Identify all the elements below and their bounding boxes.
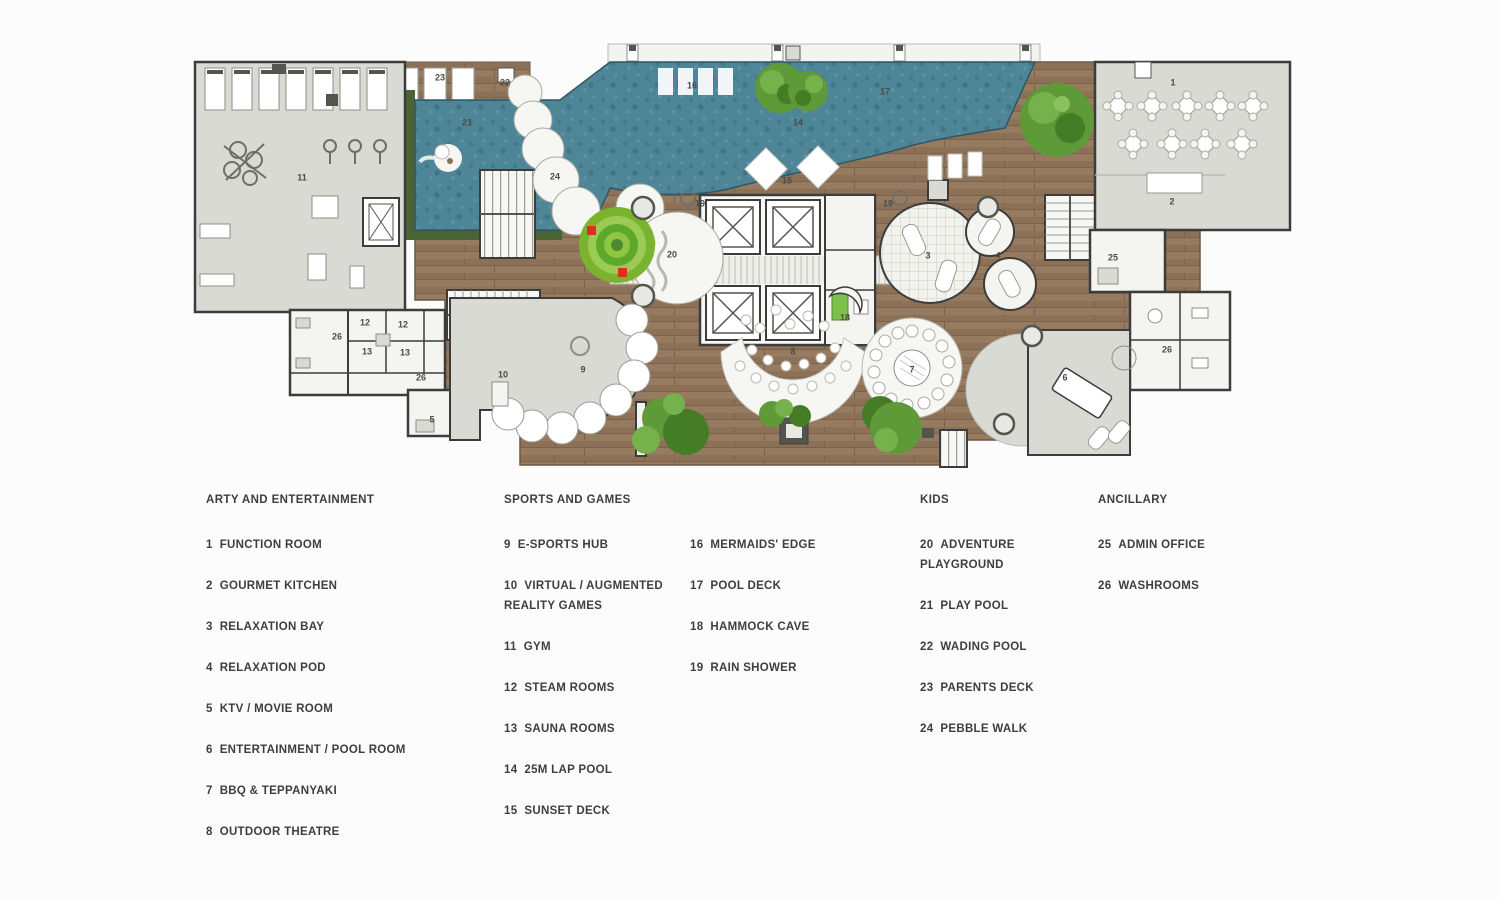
legend-heading: ANCILLARY bbox=[1098, 491, 1308, 510]
legend-item-number: 19 bbox=[690, 662, 703, 674]
legend-item-4: 4RELAXATION POD bbox=[206, 658, 506, 678]
legend-item-number: 25 bbox=[1098, 539, 1111, 551]
plan-marker-16: 16 bbox=[687, 82, 697, 91]
floor-plan-drawing bbox=[180, 28, 1295, 473]
legend-item-16: 16MERMAIDS' EDGE bbox=[690, 535, 905, 555]
legend-item-26: 26WASHROOMS bbox=[1098, 576, 1308, 596]
legend-item-number: 21 bbox=[920, 600, 933, 612]
legend-item-24: 24PEBBLE WALK bbox=[920, 719, 1052, 739]
legend-item-number: 23 bbox=[920, 682, 933, 694]
legend-item-label: ADMIN OFFICE bbox=[1118, 539, 1205, 551]
legend-item-label: SUNSET DECK bbox=[524, 805, 610, 817]
legend-item-number: 4 bbox=[206, 662, 213, 674]
plan-marker-14: 14 bbox=[793, 119, 803, 128]
legend-item-label: MERMAIDS' EDGE bbox=[710, 539, 815, 551]
legend-item-label: E-SPORTS HUB bbox=[518, 539, 609, 551]
legend-item-label: SAUNA ROOMS bbox=[524, 723, 614, 735]
plan-marker-4: 4 bbox=[995, 252, 1000, 261]
legend-item-18: 18HAMMOCK CAVE bbox=[690, 617, 905, 637]
legend-item-5: 5KTV / MOVIE ROOM bbox=[206, 699, 506, 719]
plan-marker-26: 26 bbox=[332, 333, 342, 342]
legend-item-17: 17POOL DECK bbox=[690, 576, 905, 596]
legend-item-label: 25M LAP POOL bbox=[524, 764, 612, 776]
legend-item-label: KTV / MOVIE ROOM bbox=[220, 703, 333, 715]
plan-marker-5: 5 bbox=[429, 416, 434, 425]
washrooms-right bbox=[1130, 292, 1230, 390]
legend-item-12: 12STEAM ROOMS bbox=[504, 678, 696, 698]
legend-item-label: FUNCTION ROOM bbox=[220, 539, 322, 551]
admin-office bbox=[1090, 230, 1165, 292]
legend-item-number: 14 bbox=[504, 764, 517, 776]
plan-marker-19: 19 bbox=[883, 200, 893, 209]
plan-marker-10: 10 bbox=[498, 371, 508, 380]
legend-item-7: 7BBQ & TEPPANYAKI bbox=[206, 781, 506, 801]
plan-marker-23: 23 bbox=[435, 74, 445, 83]
legend-item-label: WASHROOMS bbox=[1118, 580, 1199, 592]
legend-item-label: OUTDOOR THEATRE bbox=[220, 826, 340, 838]
gym-area bbox=[195, 62, 405, 312]
entertainment-pool-room bbox=[966, 326, 1136, 455]
tree-large-right bbox=[1020, 83, 1094, 157]
legend-item-number: 7 bbox=[206, 785, 213, 797]
legend-item-number: 24 bbox=[920, 723, 933, 735]
deck-loungers bbox=[928, 152, 982, 180]
legend-item-label: ADVENTURE PLAYGROUND bbox=[920, 539, 1015, 571]
legend-item-label: GOURMET KITCHEN bbox=[220, 580, 338, 592]
legend-item-number: 18 bbox=[690, 621, 703, 633]
legend-item-20: 20ADVENTURE PLAYGROUND bbox=[920, 535, 1052, 575]
legend-heading: ARTY AND ENTERTAINMENT bbox=[206, 491, 506, 510]
legend-item-25: 25ADMIN OFFICE bbox=[1098, 535, 1308, 555]
plan-marker-11: 11 bbox=[297, 174, 307, 183]
legend-item-number: 12 bbox=[504, 682, 517, 694]
treadmill-icons bbox=[205, 64, 387, 110]
legend-item-number: 22 bbox=[920, 641, 933, 653]
plan-marker-2: 2 bbox=[1169, 198, 1174, 207]
legend-item-number: 5 bbox=[206, 703, 213, 715]
plan-marker-22: 22 bbox=[500, 79, 510, 88]
plan-marker-1: 1 bbox=[1170, 79, 1175, 88]
legend-item-8: 8OUTDOOR THEATRE bbox=[206, 822, 506, 842]
legend-item-number: 17 bbox=[690, 580, 703, 592]
gym-elevator bbox=[363, 198, 399, 246]
plan-marker-3: 3 bbox=[925, 252, 930, 261]
function-room bbox=[1095, 62, 1290, 230]
legend-item-15: 15SUNSET DECK bbox=[504, 801, 696, 821]
legend-item-number: 16 bbox=[690, 539, 703, 551]
legend-heading: SPORTS AND GAMES bbox=[504, 491, 696, 510]
legend-item-14: 1425M LAP POOL bbox=[504, 760, 696, 780]
legend-item-number: 15 bbox=[504, 805, 517, 817]
plan-marker-13: 13 bbox=[400, 349, 410, 358]
legend-item-label: PLAY POOL bbox=[940, 600, 1008, 612]
stair-core-left bbox=[480, 170, 535, 258]
legend-item-label: PEBBLE WALK bbox=[940, 723, 1027, 735]
legend-item-1: 1FUNCTION ROOM bbox=[206, 535, 506, 555]
plan-marker-12: 12 bbox=[360, 319, 370, 328]
services-room bbox=[825, 195, 875, 345]
legend-item-label: ENTERTAINMENT / POOL ROOM bbox=[220, 744, 406, 756]
legend-item-number: 11 bbox=[504, 641, 517, 653]
legend-item-label: POOL DECK bbox=[710, 580, 781, 592]
plan-marker-17: 17 bbox=[880, 88, 890, 97]
legend-item-number: 9 bbox=[504, 539, 511, 551]
legend-item-label: RELAXATION POD bbox=[220, 662, 326, 674]
legend-item-13: 13SAUNA ROOMS bbox=[504, 719, 696, 739]
legend-item-number: 13 bbox=[504, 723, 517, 735]
plan-marker-26: 26 bbox=[416, 374, 426, 383]
legend-item-label: VIRTUAL / AUGMENTED REALITY GAMES bbox=[504, 580, 663, 612]
plan-marker-7: 7 bbox=[909, 366, 914, 375]
plan-marker-26: 26 bbox=[1162, 346, 1172, 355]
plan-marker-6: 6 bbox=[1062, 374, 1067, 383]
legend-item-label: RELAXATION BAY bbox=[220, 621, 325, 633]
legend-column-4: KIDS20ADVENTURE PLAYGROUND21PLAY POOL22W… bbox=[920, 491, 1052, 760]
plan-marker-15: 15 bbox=[782, 177, 792, 186]
floor-plan: 1234567891011121213131415161718191920212… bbox=[180, 28, 1295, 473]
plan-marker-21: 21 bbox=[462, 119, 472, 128]
plan-marker-18: 18 bbox=[840, 314, 850, 323]
pool-top-walkway bbox=[608, 44, 1040, 64]
legend-item-number: 1 bbox=[206, 539, 213, 551]
legend-item-number: 3 bbox=[206, 621, 213, 633]
legend-item-22: 22WADING POOL bbox=[920, 637, 1052, 657]
legend-item-2: 2GOURMET KITCHEN bbox=[206, 576, 506, 596]
plan-marker-24: 24 bbox=[550, 173, 560, 182]
legend-item-21: 21PLAY POOL bbox=[920, 596, 1052, 616]
legend-item-label: WADING POOL bbox=[940, 641, 1026, 653]
legend-item-label: BBQ & TEPPANYAKI bbox=[220, 785, 337, 797]
legend-item-19: 19RAIN SHOWER bbox=[690, 658, 905, 678]
stair-right bbox=[1045, 195, 1095, 260]
plan-marker-20: 20 bbox=[667, 251, 677, 260]
legend-item-label: HAMMOCK CAVE bbox=[710, 621, 809, 633]
legend-item-number: 20 bbox=[920, 539, 933, 551]
legend-item-label: GYM bbox=[524, 641, 551, 653]
legend-column-3: 16MERMAIDS' EDGE17POOL DECK18HAMMOCK CAV… bbox=[690, 535, 905, 699]
plan-marker-13: 13 bbox=[362, 348, 372, 357]
legend-item-23: 23PARENTS DECK bbox=[920, 678, 1052, 698]
kitchen-island bbox=[1147, 173, 1202, 193]
legend-item-10: 10VIRTUAL / AUGMENTED REALITY GAMES bbox=[504, 576, 696, 616]
plan-marker-25: 25 bbox=[1108, 254, 1118, 263]
legend-item-number: 10 bbox=[504, 580, 517, 592]
legend-item-number: 6 bbox=[206, 744, 213, 756]
legend-item-label: RAIN SHOWER bbox=[710, 662, 796, 674]
legend-item-3: 3RELAXATION BAY bbox=[206, 617, 506, 637]
legend-item-label: STEAM ROOMS bbox=[524, 682, 614, 694]
legend-heading: KIDS bbox=[920, 491, 1052, 510]
legend-item-9: 9E-SPORTS HUB bbox=[504, 535, 696, 555]
legend-item-number: 8 bbox=[206, 826, 213, 838]
plan-marker-12: 12 bbox=[398, 321, 408, 330]
legend-item-number: 2 bbox=[206, 580, 213, 592]
legend-column-5: ANCILLARY25ADMIN OFFICE26WASHROOMS bbox=[1098, 491, 1308, 617]
legend-item-11: 11GYM bbox=[504, 637, 696, 657]
legend-column-2: SPORTS AND GAMES9E-SPORTS HUB10VIRTUAL /… bbox=[504, 491, 696, 842]
legend-item-number: 26 bbox=[1098, 580, 1111, 592]
legend-item-label: PARENTS DECK bbox=[940, 682, 1033, 694]
plan-marker-8: 8 bbox=[790, 348, 795, 357]
legend-column-1: ARTY AND ENTERTAINMENT1FUNCTION ROOM2GOU… bbox=[206, 491, 506, 863]
amenity-floor-plan-page: 1234567891011121213131415161718191920212… bbox=[0, 0, 1500, 900]
plan-marker-9: 9 bbox=[580, 366, 585, 375]
legend-item-6: 6ENTERTAINMENT / POOL ROOM bbox=[206, 740, 506, 760]
plan-marker-19: 19 bbox=[695, 200, 705, 209]
